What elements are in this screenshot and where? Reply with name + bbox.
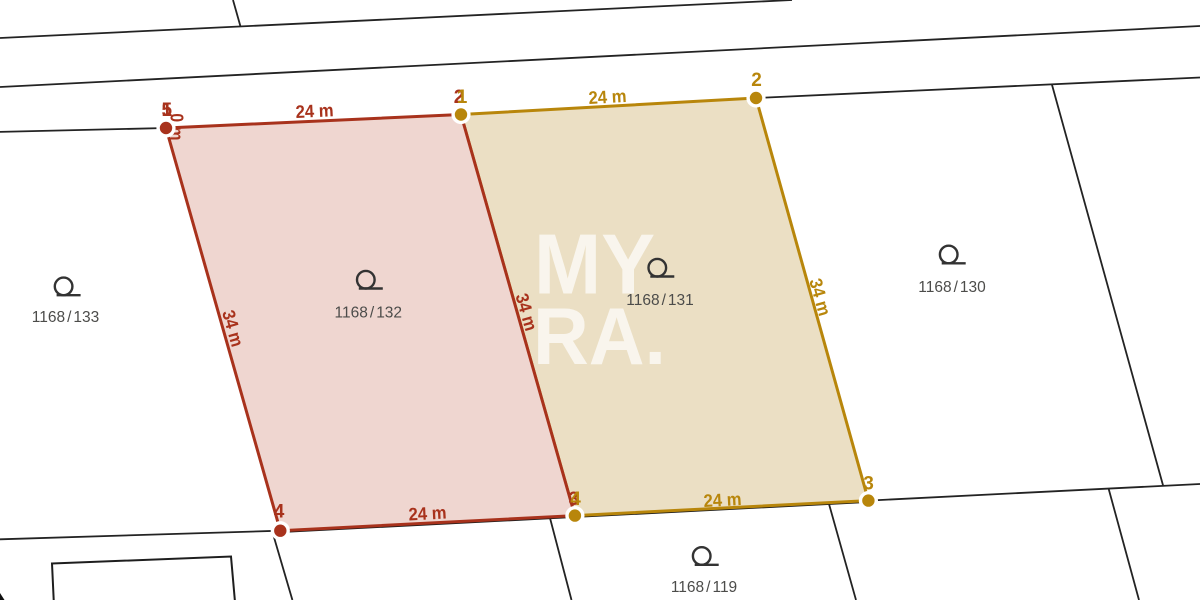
svg-text:24 m: 24 m <box>408 503 447 525</box>
svg-text:2: 2 <box>751 70 762 91</box>
svg-text:1: 1 <box>162 100 173 121</box>
svg-text:1: 1 <box>457 87 468 108</box>
svg-text:24 m: 24 m <box>588 86 627 108</box>
svg-text:24 m: 24 m <box>295 100 334 122</box>
svg-text:4: 4 <box>274 502 285 523</box>
svg-text:1168/119: 1168/119 <box>671 579 737 596</box>
svg-text:24 m: 24 m <box>703 489 742 511</box>
